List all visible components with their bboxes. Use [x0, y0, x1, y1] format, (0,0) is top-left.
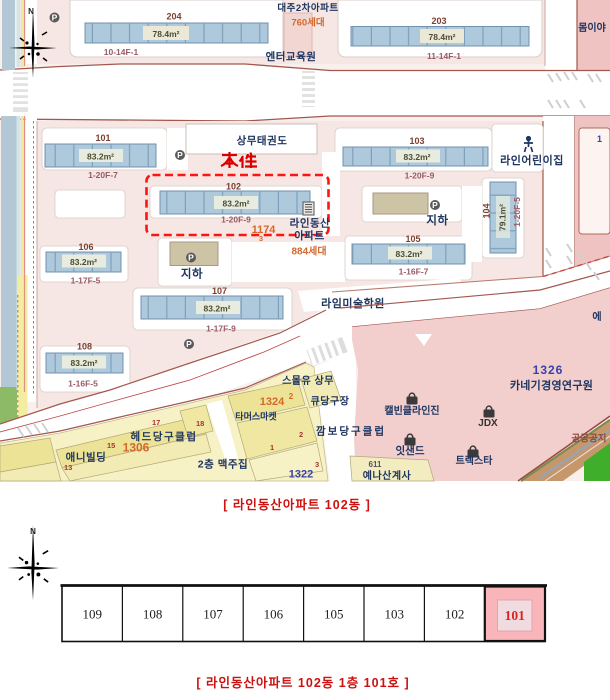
- svg-text:108: 108: [77, 342, 92, 352]
- svg-text:2층 맥주집: 2층 맥주집: [198, 458, 248, 471]
- svg-text:106: 106: [78, 242, 93, 252]
- svg-text:760세대: 760세대: [291, 17, 324, 29]
- svg-text:몸이야: 몸이야: [578, 21, 606, 34]
- svg-text:1326: 1326: [533, 363, 564, 377]
- svg-text:1-20F-9: 1-20F-9: [221, 215, 251, 225]
- svg-text:N: N: [28, 7, 34, 16]
- svg-text:공공공지: 공공공지: [572, 433, 607, 445]
- svg-text:83.2m²: 83.2m²: [70, 257, 97, 267]
- svg-text:17: 17: [152, 418, 160, 427]
- svg-text:1: 1: [597, 134, 602, 144]
- svg-text:1324: 1324: [260, 396, 285, 408]
- svg-text:83.2m²: 83.2m²: [223, 199, 250, 209]
- svg-text:1-17F-9: 1-17F-9: [206, 324, 236, 334]
- svg-text:107: 107: [212, 286, 227, 296]
- svg-text:106: 106: [264, 607, 284, 622]
- svg-text:2: 2: [289, 392, 294, 401]
- svg-text:101: 101: [95, 133, 110, 143]
- svg-text:스몰유 상무: 스몰유 상무: [282, 374, 334, 387]
- svg-text:884세대: 884세대: [291, 245, 326, 258]
- svg-text:N: N: [30, 527, 36, 536]
- svg-text:102: 102: [226, 182, 241, 192]
- svg-text:109: 109: [82, 607, 102, 622]
- svg-text:[ 라인동산아파트 102동 1층 101호 ]: [ 라인동산아파트 102동 1층 101호 ]: [196, 675, 409, 690]
- svg-text:105: 105: [324, 607, 344, 622]
- svg-text:애니빌딩: 애니빌딩: [66, 451, 107, 464]
- svg-text:잇샌드: 잇샌드: [396, 444, 425, 457]
- svg-text:101: 101: [505, 608, 526, 623]
- svg-text:15: 15: [107, 441, 115, 450]
- svg-text:1-16F-5: 1-16F-5: [68, 379, 98, 389]
- svg-text:큐당구장: 큐당구장: [311, 395, 350, 408]
- svg-text:1306: 1306: [123, 441, 150, 455]
- svg-text:1: 1: [270, 443, 274, 452]
- svg-text:에: 에: [592, 310, 601, 323]
- svg-text:카네기경영연구원: 카네기경영연구원: [510, 378, 593, 392]
- svg-text:예나산계사: 예나산계사: [363, 469, 412, 482]
- svg-text:깜보당구클럽: 깜보당구클럽: [316, 425, 386, 438]
- svg-text:83.2m²: 83.2m²: [87, 152, 114, 162]
- svg-text:102: 102: [445, 607, 465, 622]
- svg-text:3: 3: [259, 234, 263, 243]
- svg-text:83.2m²: 83.2m²: [396, 249, 423, 259]
- svg-text:203: 203: [431, 16, 446, 26]
- svg-text:10-14F-1: 10-14F-1: [104, 47, 139, 57]
- svg-text:아파트: 아파트: [294, 229, 324, 242]
- svg-text:지하: 지하: [181, 267, 203, 281]
- svg-text:트렉스타: 트렉스타: [456, 454, 494, 467]
- svg-text:엔터교육원: 엔터교육원: [266, 50, 317, 63]
- svg-text:3: 3: [315, 460, 319, 469]
- svg-text:라인어린이집: 라인어린이집: [500, 153, 564, 167]
- svg-text:78.4m²: 78.4m²: [153, 29, 180, 39]
- svg-text:1-20F-7: 1-20F-7: [88, 170, 118, 180]
- svg-text:83.2m²: 83.2m²: [204, 304, 231, 314]
- svg-text:1-20F-9: 1-20F-9: [405, 171, 435, 181]
- svg-text:1-17F-5: 1-17F-5: [71, 276, 101, 286]
- svg-text:캘빈클라인진: 캘빈클라인진: [384, 404, 439, 417]
- svg-text:13: 13: [64, 463, 72, 472]
- svg-text:지하: 지하: [426, 213, 448, 227]
- svg-text:1-20F-5: 1-20F-5: [512, 197, 522, 227]
- svg-text:1322: 1322: [289, 469, 313, 481]
- svg-text:[ 라인동산아파트 102동 ]: [ 라인동산아파트 102동 ]: [223, 497, 371, 512]
- svg-text:107: 107: [203, 607, 223, 622]
- svg-text:103: 103: [384, 607, 404, 622]
- svg-text:11-14F-1: 11-14F-1: [427, 51, 461, 61]
- svg-text:라임미술학원: 라임미술학원: [321, 296, 385, 310]
- svg-text:대주2차아파트: 대주2차아파트: [277, 2, 338, 14]
- svg-text:108: 108: [143, 607, 163, 622]
- svg-text:라인동산: 라인동산: [290, 217, 331, 230]
- svg-text:105: 105: [405, 234, 420, 244]
- svg-text:상무태권도: 상무태권도: [237, 134, 288, 147]
- svg-text:78.4m²: 78.4m²: [429, 32, 456, 42]
- svg-text:1-16F-7: 1-16F-7: [399, 267, 429, 277]
- svg-text:2: 2: [299, 430, 303, 439]
- svg-text:204: 204: [166, 12, 181, 22]
- svg-text:83.2m²: 83.2m²: [404, 152, 431, 162]
- svg-text:83.2m²: 83.2m²: [71, 358, 98, 368]
- svg-text:JDX: JDX: [478, 418, 498, 429]
- svg-text:18: 18: [196, 419, 204, 428]
- svg-text:104: 104: [482, 203, 492, 218]
- svg-text:103: 103: [409, 136, 424, 146]
- svg-text:타머스마켓: 타머스마켓: [235, 411, 277, 422]
- svg-text:611: 611: [369, 460, 382, 469]
- svg-text:1174: 1174: [252, 224, 277, 236]
- svg-text:79.1m²: 79.1m²: [498, 204, 508, 231]
